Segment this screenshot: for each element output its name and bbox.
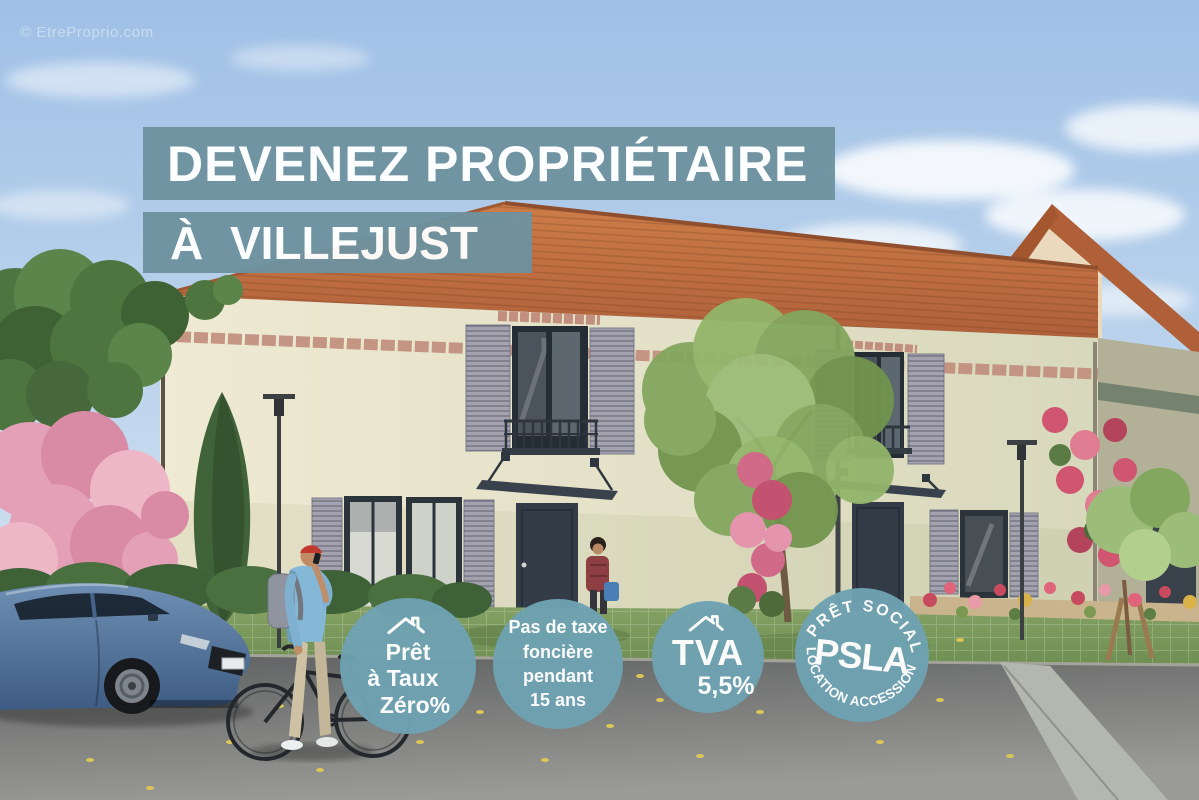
badge-line: foncière bbox=[523, 640, 593, 664]
license-plate bbox=[222, 658, 244, 669]
badge-pret-taux-zero: Prêt à Taux Zéro% bbox=[340, 598, 476, 734]
headline-text: DEVENEZ PROPRIÉTAIRE bbox=[167, 135, 808, 193]
badge-psla: PRÊT SOCIAL LOCATION ACCESSION PSLA bbox=[795, 588, 929, 722]
badge-line: Prêt bbox=[386, 639, 431, 665]
location-banner: À VILLEJUST bbox=[143, 212, 532, 273]
side-mirror bbox=[148, 614, 158, 621]
house-roof-icon bbox=[686, 613, 730, 633]
headline-banner: DEVENEZ PROPRIÉTAIRE bbox=[143, 127, 835, 200]
psla-center-text: PSLA bbox=[812, 631, 911, 682]
badge-line: pendant bbox=[523, 664, 593, 688]
badge-tva: TVA 5,5% bbox=[652, 601, 764, 713]
watermark: © EtreProprio.com bbox=[20, 24, 154, 41]
psla-curved-text: PRÊT SOCIAL LOCATION ACCESSION PSLA bbox=[795, 588, 929, 722]
badge-taxe-fonciere: Pas de taxe foncière pendant 15 ans bbox=[493, 599, 623, 729]
upstairs-window-left bbox=[466, 325, 634, 455]
blue-bag bbox=[604, 582, 619, 601]
badge-value: 5,5% bbox=[698, 672, 755, 701]
badge-line: 15 ans bbox=[530, 688, 586, 712]
badge-line: à Taux bbox=[367, 665, 438, 691]
badge-line: Pas de taxe bbox=[508, 615, 607, 639]
badge-title: TVA bbox=[672, 636, 744, 670]
house-roof-icon bbox=[385, 614, 431, 636]
badge-line: Zéro% bbox=[380, 692, 450, 718]
advert-image: © EtreProprio.com DEVENEZ PROPRIÉTAIRE À… bbox=[0, 0, 1199, 800]
location-text: À VILLEJUST bbox=[170, 216, 478, 270]
